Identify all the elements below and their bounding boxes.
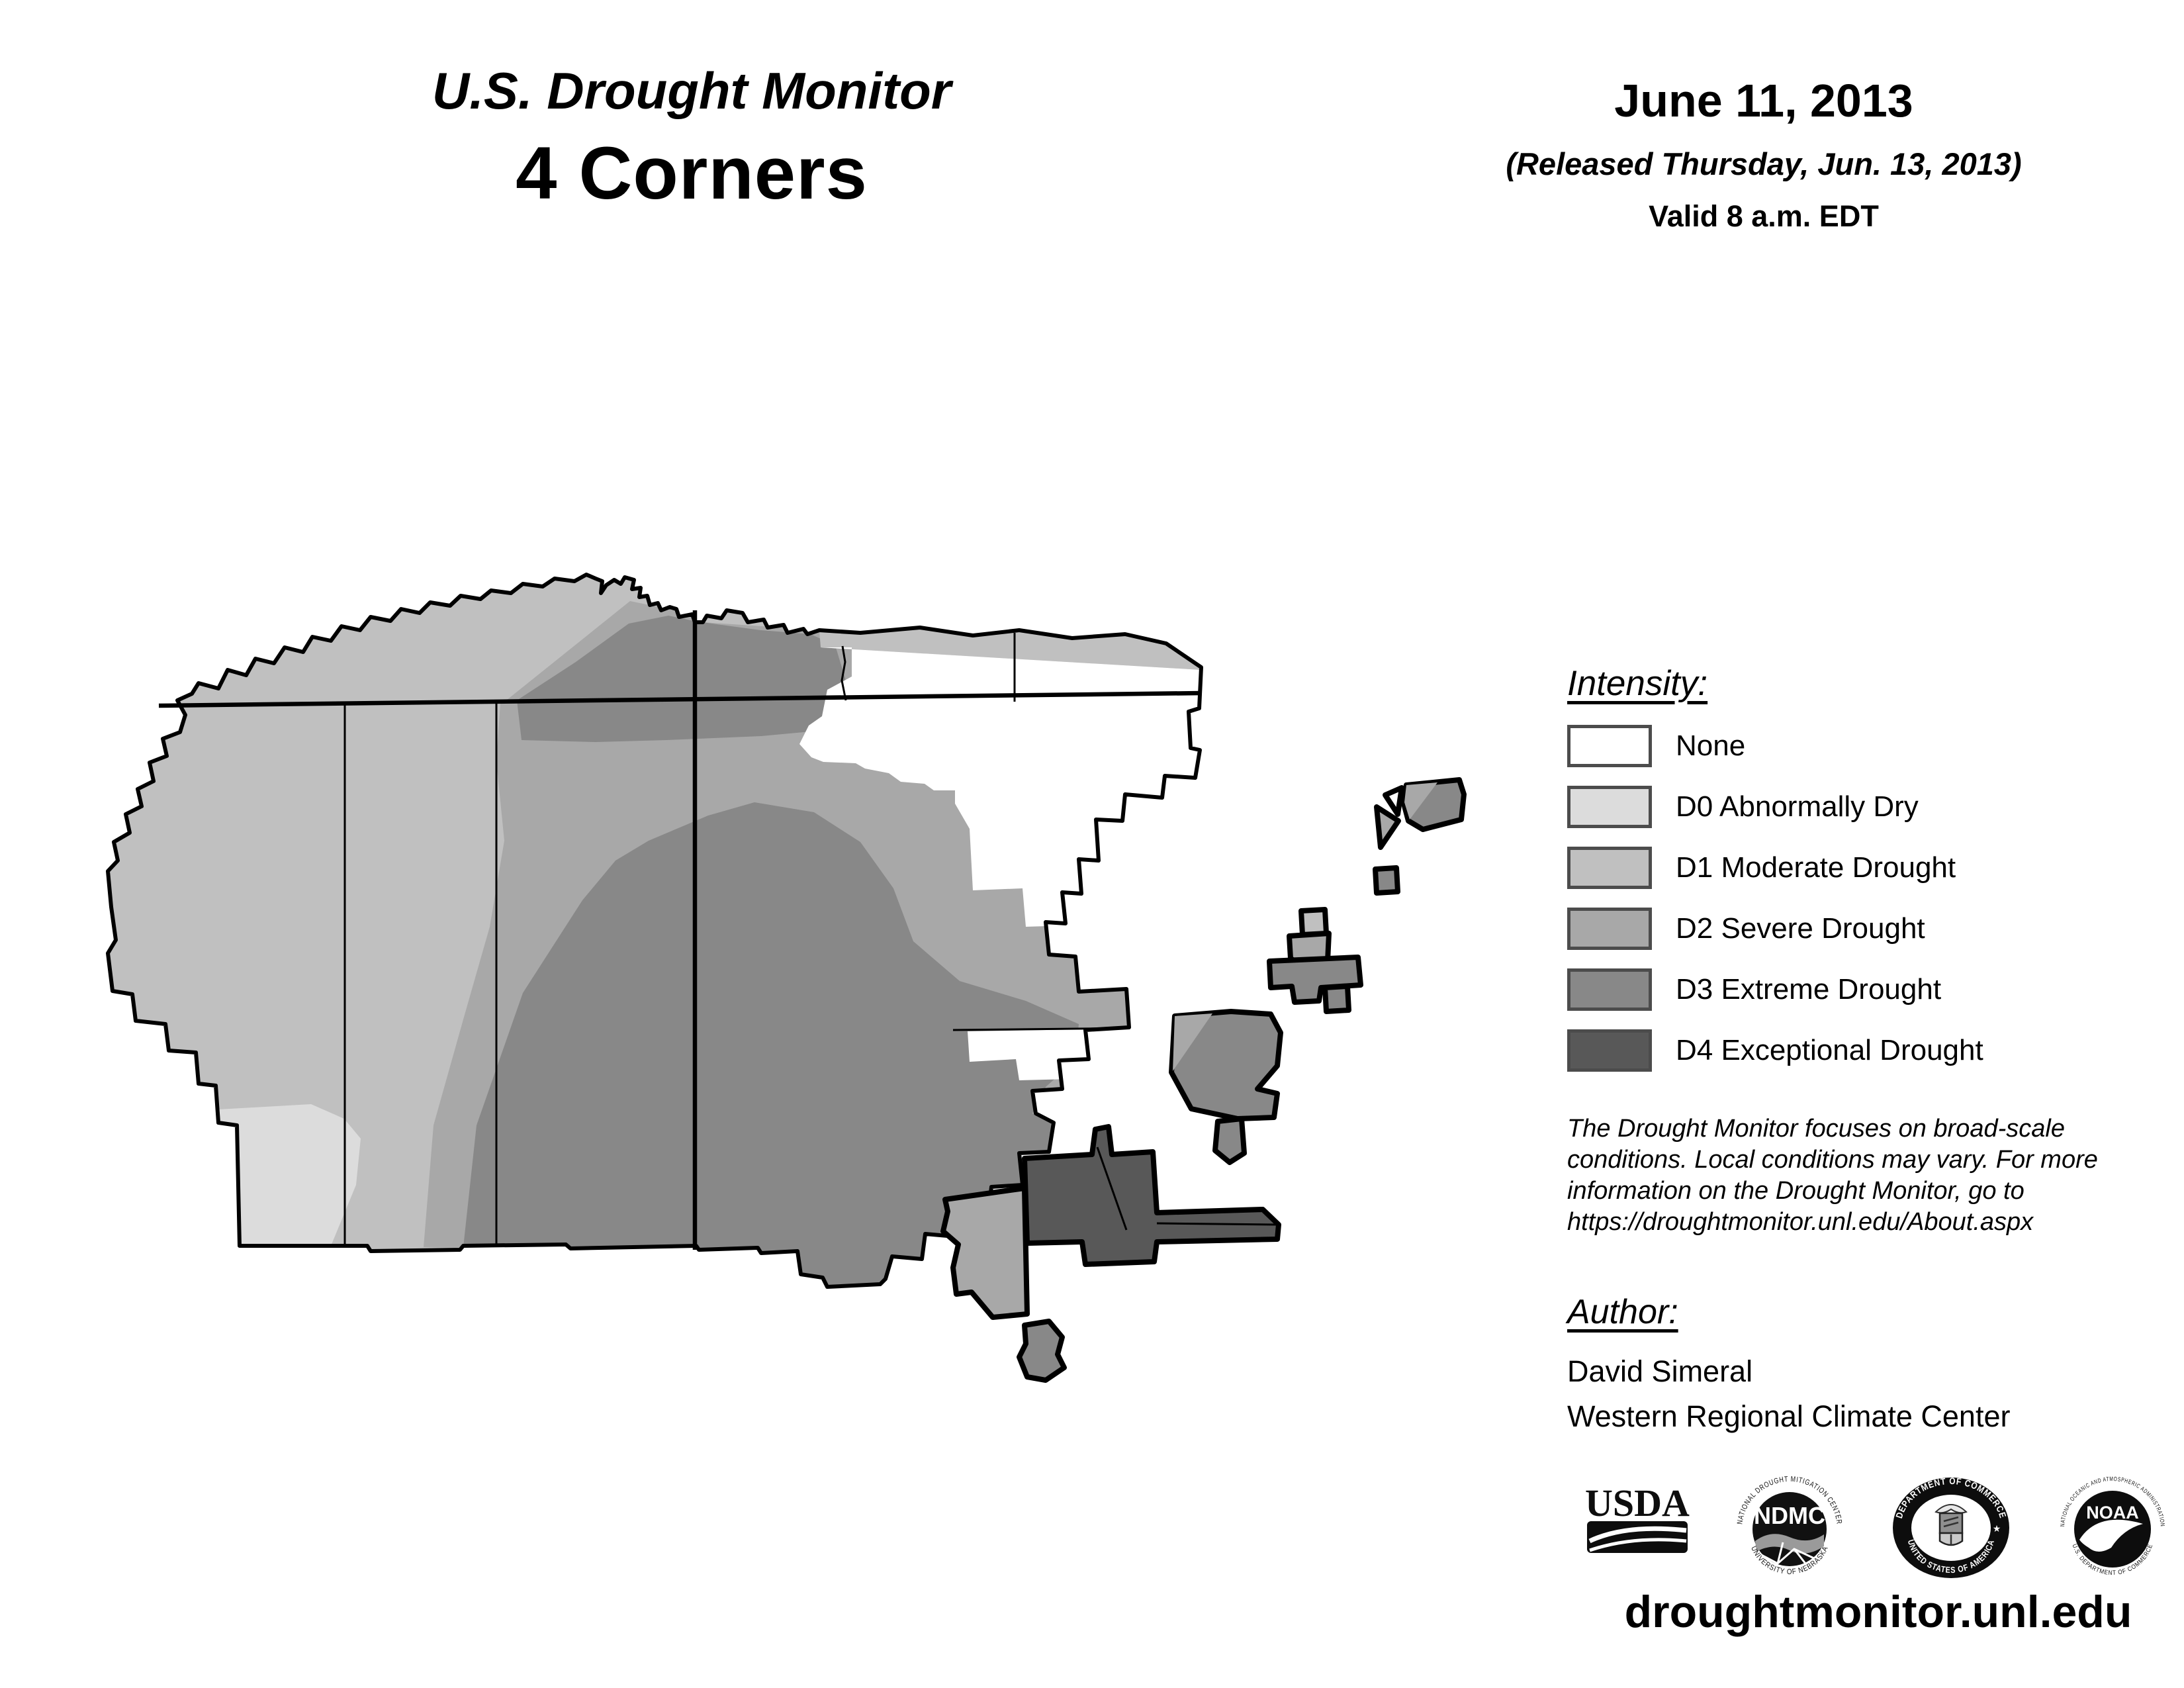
legend-item-d4: D4 Exceptional Drought [1567, 1029, 2163, 1072]
legend-label-d1: D1 Moderate Drought [1676, 851, 1956, 884]
satellite-pentagon [1215, 1119, 1244, 1162]
region-title: 4 Corners [278, 130, 1105, 216]
disclaimer-line-3: information on the Drought Monitor, go t… [1567, 1176, 2184, 1207]
satellite-acoma-arm-line [1157, 1223, 1276, 1225]
commerce-seal: ★ DEPARTMENT OF COMMERCE UNITED STATES O… [1889, 1475, 2013, 1581]
author-block: Author: David Simeral Western Regional C… [1567, 1292, 2163, 1434]
legend: Intensity: None D0 Abnormally Dry D1 Mod… [1567, 663, 2163, 1090]
date-block: June 11, 2013 (Released Thursday, Jun. 1… [1469, 74, 2058, 234]
report-title: U.S. Drought Monitor [278, 61, 1105, 121]
disclaimer-line-4: https://droughtmonitor.unl.edu/About.asp… [1567, 1207, 2184, 1238]
satellite-cluster-square-d1 [1301, 910, 1326, 935]
legend-item-d0: D0 Abnormally Dry [1567, 786, 2163, 828]
swatch-d2 [1567, 908, 1652, 950]
satellite-south-blob [1019, 1321, 1064, 1380]
swatch-d1 [1567, 847, 1652, 889]
swatch-none [1567, 725, 1652, 767]
agency-logos: USDA NDMC NATIONAL DROUGHT MITIGATION CE… [1585, 1471, 2171, 1587]
swatch-d4 [1567, 1029, 1652, 1072]
usda-wordmark: USDA [1585, 1484, 1690, 1524]
satellite-sliver-1 [1385, 788, 1402, 814]
disclaimer-text: The Drought Monitor focuses on broad-sca… [1567, 1113, 2184, 1238]
swatch-d3 [1567, 968, 1652, 1011]
author-org: Western Regional Climate Center [1567, 1399, 2163, 1434]
legend-label-d2: D2 Severe Drought [1676, 912, 1925, 945]
legend-heading: Intensity: [1567, 663, 2163, 704]
title-block: U.S. Drought Monitor 4 Corners [278, 61, 1105, 216]
drought-monitor-page: U.S. Drought Monitor 4 Corners June 11, … [0, 0, 2184, 1688]
legend-label-d0: D0 Abnormally Dry [1676, 790, 1919, 823]
doc-shield-upper [1940, 1513, 1962, 1533]
disclaimer-line-1: The Drought Monitor focuses on broad-sca… [1567, 1113, 2184, 1145]
usda-logo: USDA [1585, 1484, 1690, 1557]
doc-star-right: ★ [1993, 1523, 2001, 1534]
noaa-wordmark: NOAA [2086, 1503, 2139, 1523]
legend-label-none: None [1676, 729, 1745, 763]
noaa-logo: NOAA NATIONAL OCEANIC AND ATMOSPHERIC AD… [2054, 1471, 2171, 1587]
footer-url: droughtmonitor.unl.edu [1567, 1586, 2184, 1638]
ndmc-logo: NDMC NATIONAL DROUGHT MITIGATION CENTER … [1731, 1471, 1848, 1587]
satellite-zuni-d2 [943, 1188, 1027, 1317]
author-heading: Author: [1567, 1292, 2163, 1332]
legend-item-d2: D2 Severe Drought [1567, 908, 2163, 950]
satellite-small-square [1375, 868, 1398, 893]
legend-item-d1: D1 Moderate Drought [1567, 847, 2163, 889]
legend-item-d3: D3 Extreme Drought [1567, 968, 2163, 1011]
map-date: June 11, 2013 [1469, 74, 2058, 127]
drought-map [60, 549, 1668, 1489]
legend-item-none: None [1567, 725, 2163, 767]
disclaimer-line-2: conditions. Local conditions may vary. F… [1567, 1145, 2184, 1176]
legend-label-d4: D4 Exceptional Drought [1676, 1034, 1983, 1067]
legend-label-d3: D3 Extreme Drought [1676, 973, 1941, 1006]
ndmc-wordmark: NDMC [1754, 1502, 1825, 1529]
valid-time: Valid 8 a.m. EDT [1469, 199, 2058, 234]
author-name: David Simeral [1567, 1354, 2163, 1389]
swatch-d0 [1567, 786, 1652, 828]
satellite-cluster-square-d3 [1325, 986, 1349, 1011]
release-date: (Released Thursday, Jun. 13, 2013) [1469, 146, 2058, 182]
